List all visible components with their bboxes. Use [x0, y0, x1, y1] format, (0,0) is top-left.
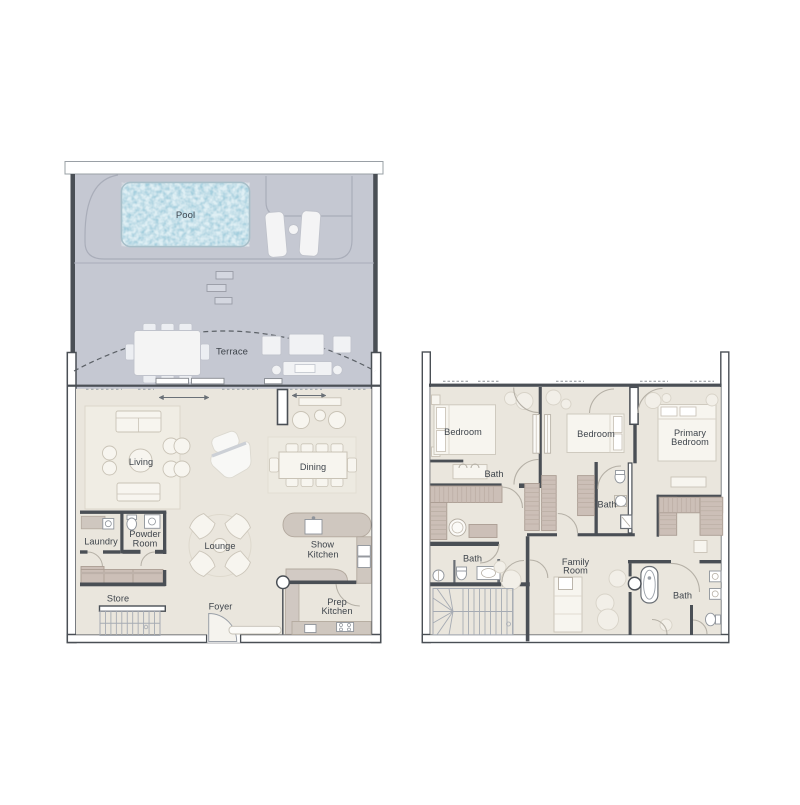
svg-text:Bath: Bath: [673, 591, 692, 601]
svg-text:Bath: Bath: [463, 553, 482, 563]
svg-text:Bedroom: Bedroom: [671, 437, 709, 447]
svg-text:Kitchen: Kitchen: [308, 549, 339, 559]
svg-text:Lounge: Lounge: [205, 541, 236, 551]
svg-text:Laundry: Laundry: [84, 536, 118, 546]
svg-text:Bath: Bath: [597, 499, 616, 509]
svg-text:Show: Show: [311, 540, 334, 550]
svg-text:Dining: Dining: [300, 462, 326, 472]
svg-text:Room: Room: [133, 539, 158, 549]
svg-text:Terrace: Terrace: [216, 347, 248, 358]
svg-text:Store: Store: [107, 593, 129, 603]
svg-text:Kitchen: Kitchen: [322, 606, 353, 616]
svg-text:Foyer: Foyer: [209, 601, 233, 611]
svg-text:Bedroom: Bedroom: [577, 429, 615, 439]
svg-text:Room: Room: [563, 566, 588, 576]
svg-text:Bath: Bath: [484, 469, 503, 479]
svg-text:Living: Living: [129, 457, 153, 467]
svg-text:Bedroom: Bedroom: [444, 427, 482, 437]
svg-text:Pool: Pool: [176, 210, 195, 221]
